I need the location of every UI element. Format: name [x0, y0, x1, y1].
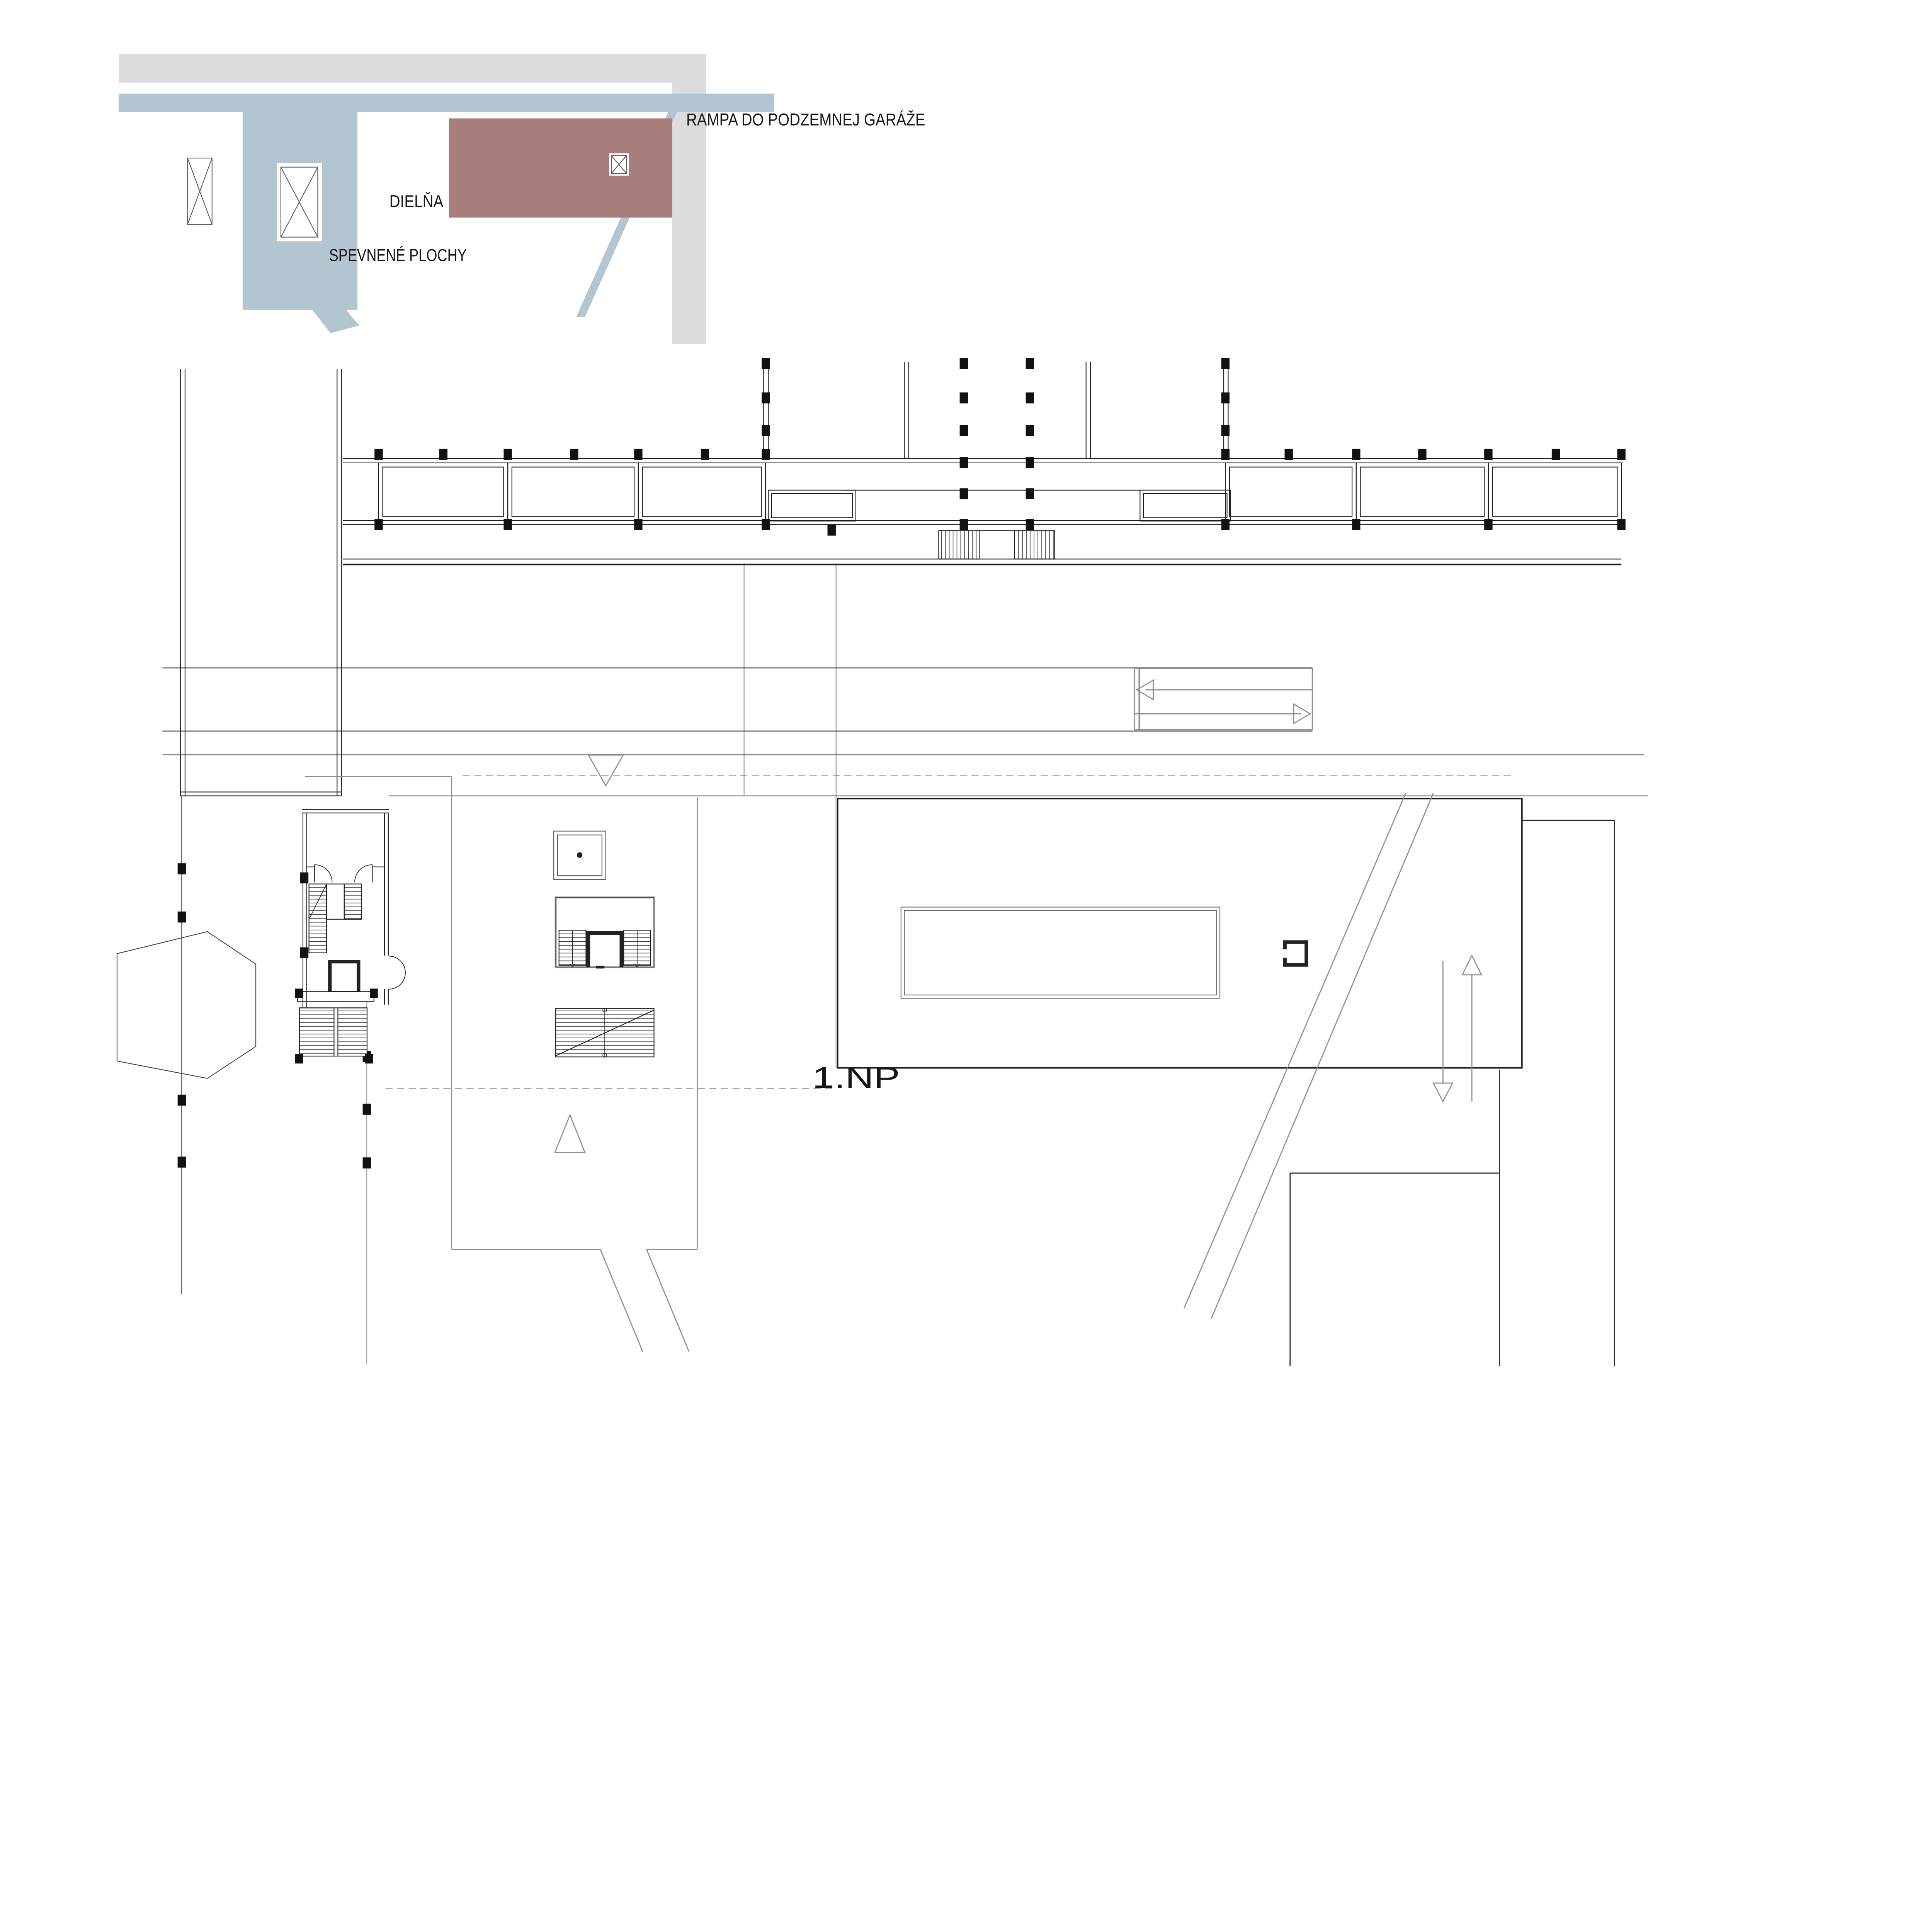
- skylight-square: [554, 831, 606, 879]
- window-x-symbol: [609, 153, 629, 176]
- workshop-label: DIELŇA: [389, 192, 444, 211]
- site-road-lines: [162, 668, 1648, 1088]
- floor-plan-page: RAMPA DO PODZEMNEJ GARÁŽE DIELŇA SPEVNEN…: [0, 0, 1932, 1366]
- window-x-symbol: [187, 158, 212, 225]
- ramp-label: RAMPA DO PODZEMNEJ GARÁŽE: [686, 110, 925, 129]
- walkway-diagonals: [600, 1249, 689, 1351]
- room-row-left: [379, 463, 765, 520]
- elevator-shaft: [588, 933, 621, 967]
- wing-walls: [763, 361, 1228, 459]
- road-band-gray: [119, 54, 706, 83]
- left-court: [180, 369, 367, 1364]
- stair-flight: [309, 884, 361, 953]
- door-swing-icon: [389, 956, 405, 989]
- vertical-circulation-arrows: [1433, 956, 1481, 1102]
- entrance-grilles: [939, 531, 1054, 559]
- column-dots: [374, 358, 1626, 536]
- upper-room-band: [343, 361, 1623, 1068]
- wide-entry-stair: [556, 1008, 654, 1057]
- hexagon-pavilion: [117, 932, 256, 1078]
- floor-plan-drawing: RAMPA DO PODZEMNEJ GARÁŽE DIELŇA SPEVNEN…: [0, 0, 1932, 1366]
- garage-ramp-box: [1134, 668, 1312, 730]
- site-diagonal-paths: [1184, 793, 1433, 1319]
- exterior-stair: [299, 1008, 367, 1056]
- site-color-shapes: [119, 54, 774, 344]
- floor-level-label: 1.NP: [812, 1061, 900, 1094]
- elevator-shaft: [1285, 942, 1306, 965]
- central-stair-core: [556, 898, 654, 967]
- plot-boundaries: [1290, 820, 1615, 1366]
- section-triangle-up: [555, 1115, 585, 1153]
- paved-spur-blue: [311, 308, 359, 333]
- ramp-direction-arrows: [1134, 680, 1312, 723]
- annex-room-right: [1140, 490, 1230, 521]
- hall-inner-court: [901, 907, 1220, 998]
- section-triangle-down: [588, 755, 623, 786]
- elevator-shaft: [330, 962, 359, 992]
- stair-wing: [298, 810, 405, 1056]
- annex-room-left: [768, 490, 856, 521]
- workshop-area-red: [449, 118, 672, 218]
- lower-building: [305, 777, 697, 1352]
- window-x-symbol: [277, 163, 322, 241]
- room-row-right: [1225, 463, 1621, 520]
- main-hall: [838, 799, 1522, 1068]
- canopy-slab: [298, 992, 374, 1002]
- paved-areas-label: SPEVNENÉ PLOCHY: [329, 246, 467, 265]
- door-swing-icon: [307, 865, 384, 883]
